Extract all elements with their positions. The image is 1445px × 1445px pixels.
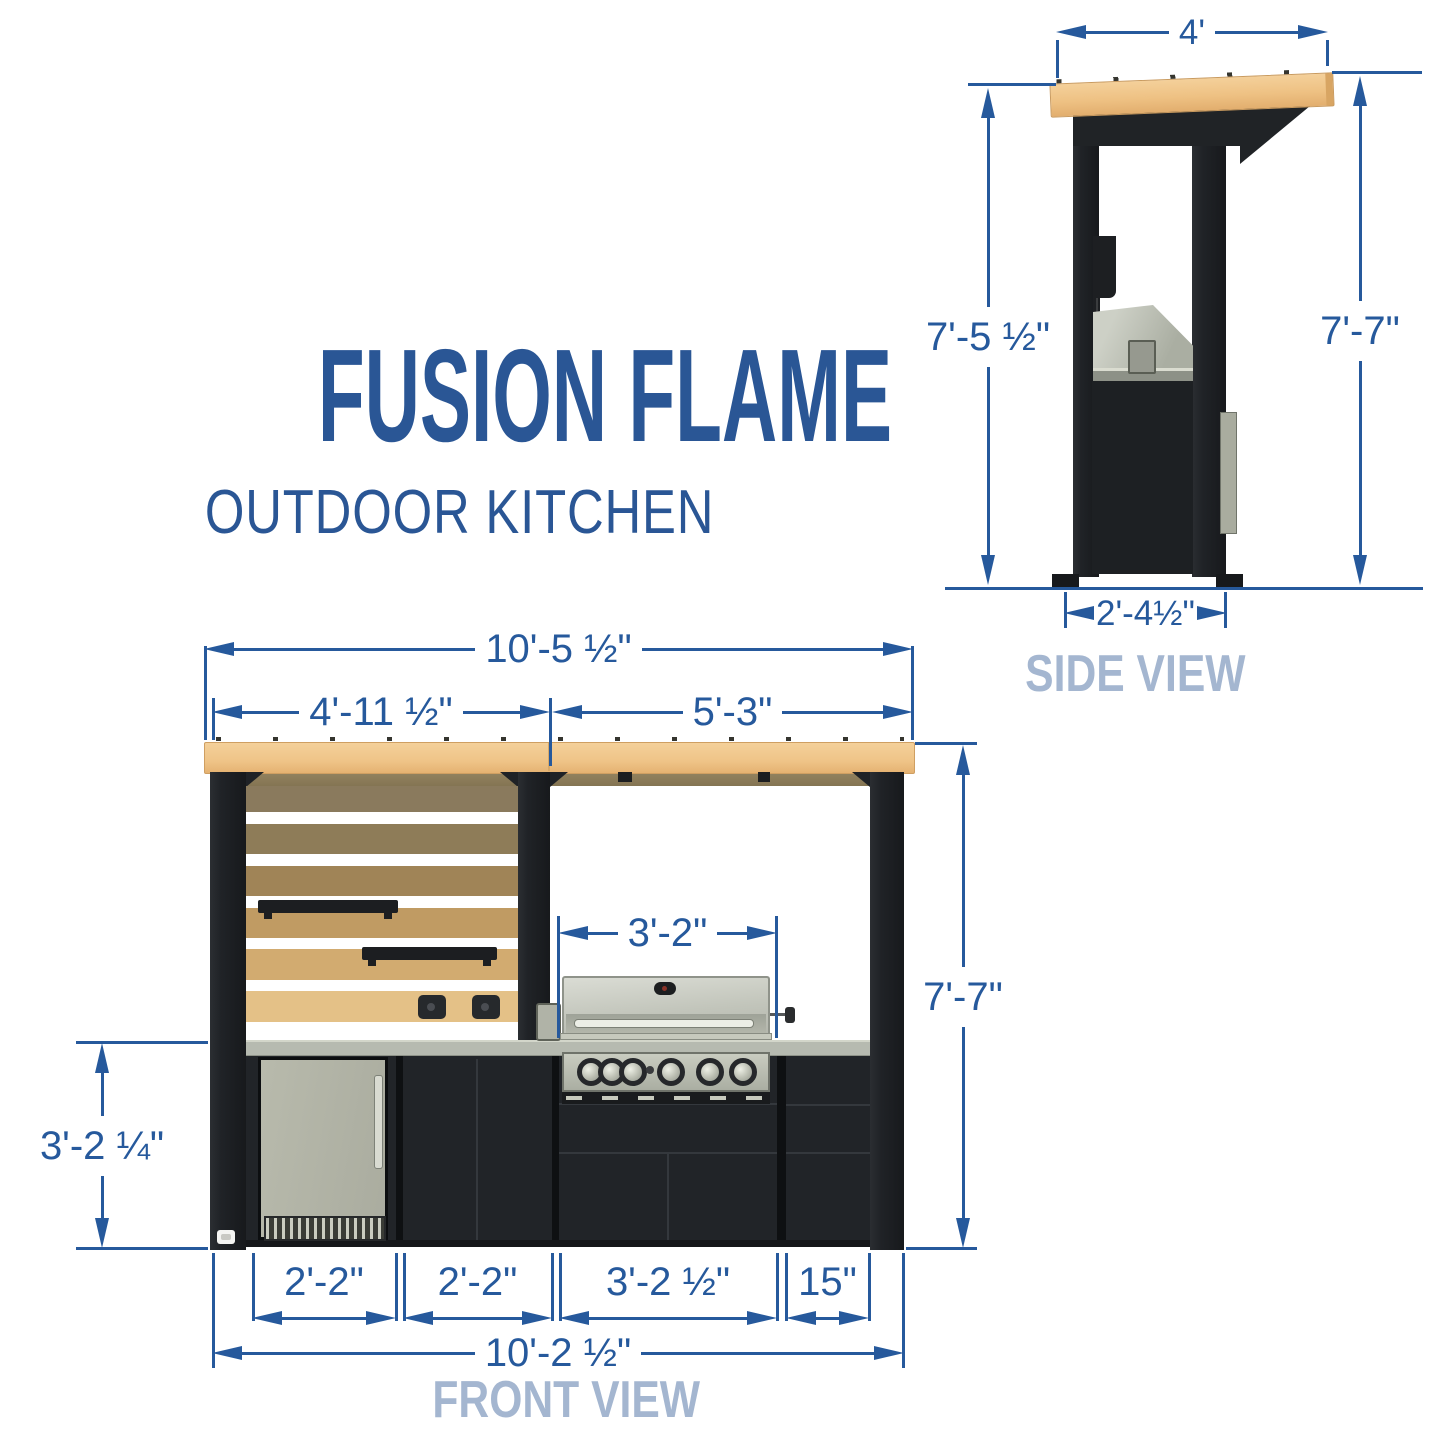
arrow-left-icon (403, 1311, 433, 1325)
arrow-left-icon (552, 705, 582, 719)
fridge-door (258, 1057, 388, 1240)
dim-module-drawers: 15" (786, 1262, 869, 1325)
brand-badge (217, 1230, 235, 1244)
side-base-cabinet (1092, 381, 1193, 574)
arrow-left-icon (786, 1311, 816, 1325)
side-foot-rear (1216, 574, 1243, 587)
page-title: FUSION FLAME (318, 330, 892, 462)
fridge-vent-grille (264, 1216, 386, 1241)
grill-knob (696, 1058, 724, 1086)
front-left-post (210, 772, 246, 1250)
arrow-right-icon (522, 1311, 552, 1325)
underband-clip (758, 772, 770, 782)
diagram-canvas: FUSION FLAME OUTDOOR KITCHEN 4' 7'-5 (0, 0, 1445, 1445)
arrow-left-icon (558, 926, 588, 940)
arrow-up-icon (1353, 76, 1367, 106)
arrow-left-icon (212, 1346, 242, 1360)
dim-front-left-span: 4'-11 ½" (212, 691, 550, 733)
roof-screws (1056, 69, 1324, 84)
arrow-left-icon (559, 1311, 589, 1325)
grill-knob (619, 1058, 647, 1086)
side-burner-knob-box (1128, 340, 1156, 374)
arrow-down-icon (1353, 555, 1367, 585)
slat (246, 866, 518, 896)
arrow-right-icon (747, 926, 777, 940)
slat (246, 824, 518, 854)
slat-hook (472, 995, 500, 1019)
grill-control-panel (562, 1052, 770, 1092)
arrow-right-icon (874, 1346, 904, 1360)
dim-module-cabinet: 2'-2" (403, 1262, 552, 1325)
front-center-post (518, 772, 550, 1040)
arrow-right-icon (883, 705, 913, 719)
extension-line (945, 587, 1423, 590)
side-rear-panel-strip (1220, 412, 1237, 534)
extension-line (1332, 71, 1422, 74)
slat (246, 786, 518, 812)
arrow-left-icon (1064, 606, 1094, 620)
front-wood-top (204, 742, 915, 774)
title-block: FUSION FLAME OUTDOOR KITCHEN (110, 330, 810, 544)
grill-knob (657, 1058, 685, 1086)
grill-hood-lip (560, 1033, 772, 1040)
arrow-right-icon (1197, 606, 1227, 620)
grill-handle-bar (574, 1019, 754, 1028)
arrow-down-icon (95, 1218, 109, 1248)
dim-front-overall-height: 7'-7" (903, 745, 1023, 1248)
arrow-down-icon (956, 1218, 970, 1248)
grill-vent-band (562, 1092, 770, 1104)
front-view-label: FRONT VIEW (366, 1374, 766, 1426)
page-subtitle: OUTDOOR KITCHEN (205, 482, 714, 544)
front-roof-screws (216, 737, 904, 741)
dim-grill-width: 3'-2" (558, 912, 777, 954)
arrow-left-icon (212, 705, 242, 719)
arrow-left-icon (204, 642, 234, 656)
dim-side-roof-width: 4' (1056, 12, 1328, 52)
arrow-right-icon (366, 1311, 396, 1325)
dim-module-fridge: 2'-2" (252, 1262, 396, 1325)
side-view-label: SIDE VIEW (985, 648, 1285, 700)
arrow-right-icon (520, 705, 550, 719)
extension-line (968, 83, 1056, 86)
side-slatwall-edge (1093, 236, 1116, 298)
dim-counter-height: 3'-2 ¼" (37, 1043, 167, 1248)
arrow-down-icon (981, 555, 995, 585)
dim-front-overall-bottom: 10'-2 ½" (212, 1332, 904, 1374)
dim-side-height-left: 7'-5 ½" (928, 88, 1048, 585)
fridge-handle (374, 1075, 383, 1169)
arrow-up-icon (981, 88, 995, 118)
underband-clip (618, 772, 632, 782)
side-foot-front (1052, 574, 1079, 587)
dim-module-grill: 3'-2 ½" (559, 1262, 777, 1325)
arrow-right-icon (883, 642, 913, 656)
dim-front-right-span: 5'-3" (552, 691, 913, 733)
grill-knob (729, 1058, 757, 1086)
slat-hook (418, 995, 446, 1019)
arrow-up-icon (956, 745, 970, 775)
slat-shelf (362, 947, 497, 960)
arrow-left-icon (1056, 25, 1086, 39)
arrow-right-icon (1298, 25, 1328, 39)
slat-shelf (258, 900, 398, 913)
rotisserie-knob (785, 1007, 795, 1023)
arrow-right-icon (839, 1311, 869, 1325)
arrow-right-icon (747, 1311, 777, 1325)
dim-side-height-right: 7'-7" (1300, 76, 1420, 585)
grill-thermometer (654, 982, 676, 995)
ignition-button (646, 1066, 654, 1074)
front-countertop (246, 1040, 870, 1056)
front-right-post (870, 772, 904, 1250)
dim-front-overall-top: 10'-5 ½" (204, 628, 913, 670)
arrow-left-icon (252, 1311, 282, 1325)
arrow-up-icon (95, 1043, 109, 1073)
dim-side-base-depth: 2'-4½" (1064, 594, 1227, 632)
